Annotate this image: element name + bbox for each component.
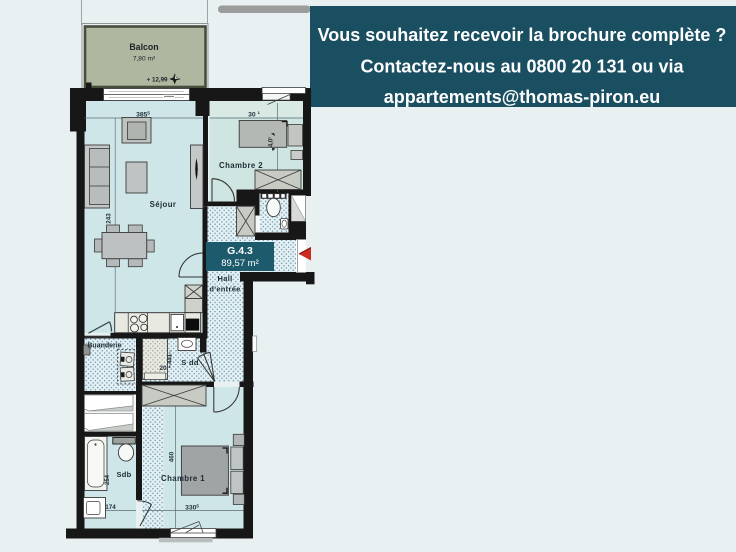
- svg-text:441: 441: [168, 353, 174, 364]
- svg-text:Sdb: Sdb: [116, 470, 131, 479]
- svg-text:20 ¹: 20 ¹: [159, 365, 170, 372]
- svg-text:Vous souhaitez recevoir la bro: Vous souhaitez recevoir la brochure comp…: [318, 25, 727, 45]
- svg-text:Chambre 1: Chambre 1: [161, 474, 205, 483]
- svg-text:7,80 m²: 7,80 m²: [133, 56, 156, 63]
- svg-text:4,0¹: 4,0¹: [268, 137, 275, 147]
- svg-text:d'entrée: d'entrée: [209, 285, 240, 294]
- svg-text:G.4.3: G.4.3: [227, 245, 253, 257]
- svg-text:appartements@thomas-piron.eu: appartements@thomas-piron.eu: [384, 87, 661, 107]
- svg-text:+ 12,99: + 12,99: [147, 77, 168, 84]
- svg-text:Chambre 2: Chambre 2: [219, 161, 263, 170]
- svg-text:460: 460: [169, 451, 176, 462]
- svg-text:S dd: S dd: [181, 358, 199, 367]
- svg-text:Contactez-nous au 0800 20 131: Contactez-nous au 0800 20 131 ou via: [360, 57, 684, 77]
- svg-text:Buanderie: Buanderie: [87, 343, 121, 350]
- svg-text:174: 174: [105, 504, 116, 511]
- svg-text:254: 254: [105, 474, 111, 485]
- svg-text:Séjour: Séjour: [150, 200, 177, 209]
- svg-text:Hall: Hall: [218, 274, 233, 283]
- svg-text:30 ¹: 30 ¹: [248, 111, 260, 118]
- svg-text:Balcon: Balcon: [129, 42, 158, 52]
- svg-text:243: 243: [106, 213, 113, 224]
- svg-text:89,57 m²: 89,57 m²: [221, 258, 259, 269]
